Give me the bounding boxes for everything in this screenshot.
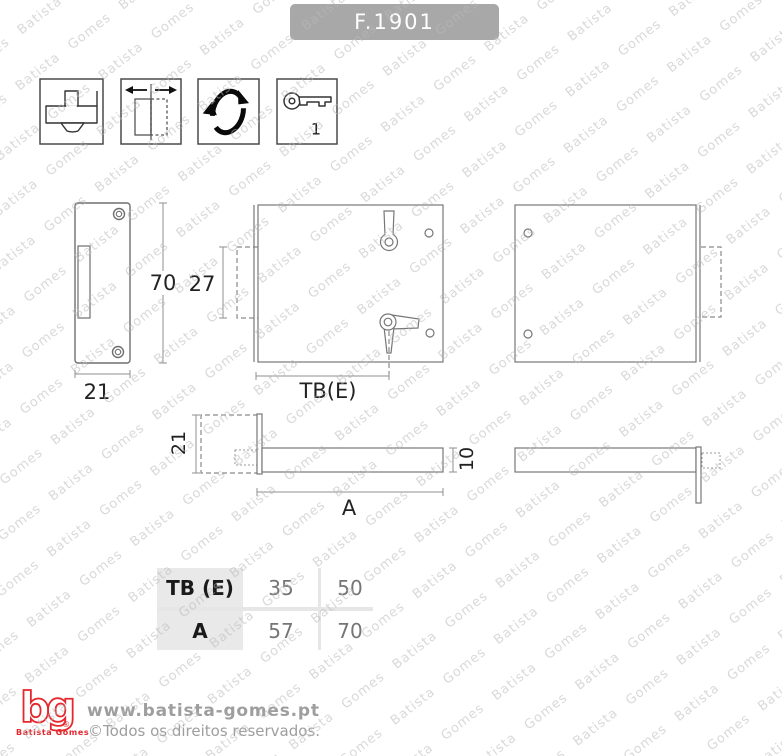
logo-name: Batista Gomes (16, 728, 89, 737)
top-view-left-drawing (201, 414, 443, 474)
table-cell-a-2: 70 (321, 611, 379, 650)
rotation-icon (199, 83, 251, 137)
datasheet-page: F.1901 (0, 0, 782, 756)
table-cell-tbe-1: 35 (243, 568, 319, 607)
product-code: F.1901 (354, 10, 435, 34)
latch-mechanism-icon (46, 91, 97, 132)
table-header-tbe: TB (E) (157, 568, 243, 607)
dim-latch-height-label: 27 (189, 272, 216, 296)
product-code-badge: F.1901 (290, 4, 499, 40)
copyright-text: ©Todos os direitos reservados. (88, 722, 320, 740)
table-header-a: A (157, 611, 243, 650)
reversible-latch-icon (125, 84, 177, 140)
dim-front-height-label: 70 (146, 271, 181, 295)
dim-plate-width-label: 21 (84, 380, 111, 404)
top-view-right-drawing (515, 447, 720, 503)
table-cell-tbe-2: 50 (321, 568, 379, 607)
table-cell-a-1: 57 (243, 611, 319, 650)
lock-front-drawing (237, 205, 443, 374)
lock-back-drawing (515, 205, 721, 362)
website-link[interactable]: www.batista-gomes.pt (87, 701, 320, 721)
dim-body-depth-label: 10 (456, 447, 478, 471)
dim-backset-label: TB(E) (300, 379, 357, 403)
technical-drawings (0, 0, 782, 756)
key-count-label: 1 (311, 120, 321, 139)
dim-length-label: A (342, 496, 356, 520)
batista-gomes-logo: bg (18, 686, 82, 734)
key-icon (284, 93, 331, 109)
strike-plate-drawing (75, 203, 130, 363)
dim-plate-depth-label: 21 (168, 431, 190, 455)
